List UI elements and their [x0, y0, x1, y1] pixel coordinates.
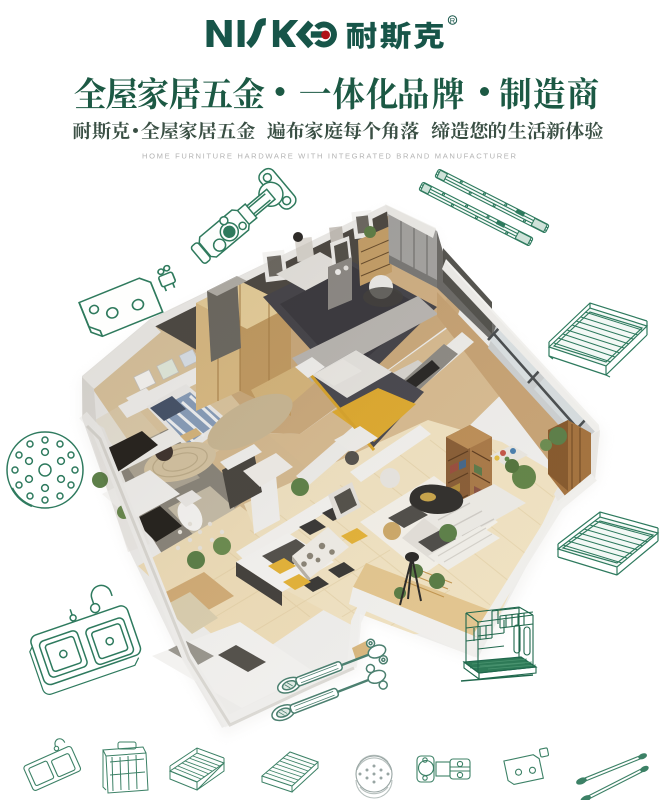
svg-text:R: R: [450, 16, 456, 25]
svg-text:HOME FURNITURE HARDWARE WITH I: HOME FURNITURE HARDWARE WITH INTEGRATED …: [142, 152, 517, 161]
